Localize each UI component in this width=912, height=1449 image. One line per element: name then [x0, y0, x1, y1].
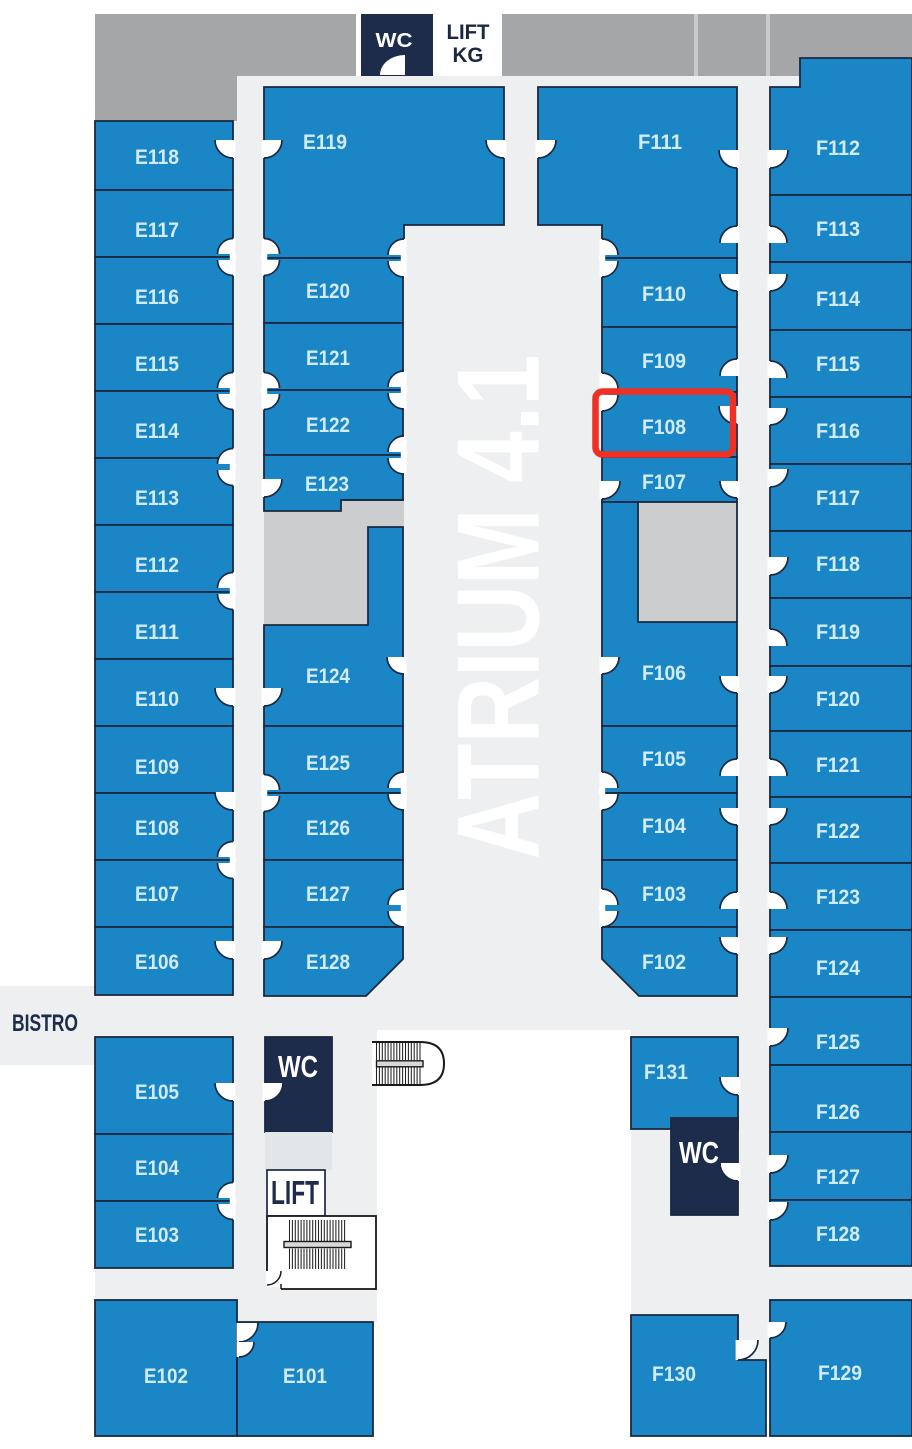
svg-text:E118: E118: [135, 146, 179, 169]
svg-text:F117: F117: [816, 487, 860, 510]
svg-text:F112: F112: [816, 137, 860, 160]
svg-text:E126: E126: [306, 817, 350, 840]
svg-text:E125: E125: [306, 752, 350, 775]
svg-text:F125: F125: [816, 1031, 860, 1054]
svg-text:F106: F106: [642, 662, 686, 685]
svg-text:F108: F108: [642, 416, 686, 439]
svg-text:F118: F118: [816, 553, 860, 576]
svg-text:LIFT: LIFT: [447, 21, 490, 44]
svg-text:KG: KG: [453, 44, 484, 67]
svg-text:E117: E117: [135, 219, 179, 242]
svg-text:E124: E124: [306, 665, 350, 688]
svg-text:E120: E120: [306, 280, 350, 303]
svg-text:E119: E119: [303, 131, 347, 154]
svg-text:F127: F127: [816, 1166, 860, 1189]
svg-text:F129: F129: [818, 1362, 862, 1385]
svg-text:E107: E107: [135, 883, 179, 906]
svg-text:LIFT: LIFT: [271, 1174, 319, 1211]
svg-text:F119: F119: [816, 621, 860, 644]
svg-text:E110: E110: [135, 688, 179, 711]
svg-text:ATRIUM 4.1: ATRIUM 4.1: [433, 355, 564, 860]
svg-text:F123: F123: [816, 886, 860, 909]
svg-text:F110: F110: [642, 283, 686, 306]
svg-text:E101: E101: [283, 1365, 327, 1388]
svg-text:E122: E122: [306, 414, 350, 437]
svg-text:E111: E111: [135, 621, 179, 644]
svg-text:F105: F105: [642, 748, 686, 771]
svg-text:WC: WC: [278, 1049, 318, 1084]
svg-text:WC: WC: [679, 1135, 719, 1170]
svg-text:E115: E115: [135, 353, 179, 376]
svg-text:F102: F102: [642, 951, 686, 974]
svg-text:F126: F126: [816, 1101, 860, 1124]
svg-text:F113: F113: [816, 218, 860, 241]
svg-text:E112: E112: [135, 554, 179, 577]
svg-text:F111: F111: [638, 131, 682, 154]
svg-text:E114: E114: [135, 420, 179, 443]
svg-text:WC: WC: [376, 30, 413, 52]
svg-text:E116: E116: [135, 286, 179, 309]
svg-text:F109: F109: [642, 350, 686, 373]
svg-text:E105: E105: [135, 1081, 179, 1104]
svg-text:F103: F103: [642, 883, 686, 906]
svg-text:F128: F128: [816, 1223, 860, 1246]
svg-text:F116: F116: [816, 420, 860, 443]
svg-text:E104: E104: [135, 1157, 179, 1180]
svg-text:F131: F131: [644, 1061, 688, 1084]
svg-text:F114: F114: [816, 288, 860, 311]
svg-text:E103: E103: [135, 1224, 179, 1247]
svg-text:F115: F115: [816, 353, 860, 376]
svg-text:E128: E128: [306, 951, 350, 974]
svg-text:E121: E121: [306, 347, 350, 370]
svg-text:F130: F130: [652, 1363, 696, 1386]
svg-text:F120: F120: [816, 688, 860, 711]
svg-text:E102: E102: [144, 1365, 188, 1388]
svg-text:E123: E123: [305, 473, 349, 496]
svg-text:E109: E109: [135, 756, 179, 779]
svg-text:F122: F122: [816, 820, 860, 843]
svg-text:F107: F107: [642, 471, 686, 494]
svg-text:E108: E108: [135, 817, 179, 840]
svg-text:E113: E113: [135, 487, 179, 510]
svg-text:F124: F124: [816, 957, 860, 980]
svg-text:E127: E127: [306, 883, 350, 906]
svg-text:F104: F104: [642, 815, 686, 838]
svg-text:BISTRO: BISTRO: [12, 1010, 78, 1037]
svg-text:E106: E106: [135, 951, 179, 974]
svg-text:F121: F121: [816, 754, 860, 777]
